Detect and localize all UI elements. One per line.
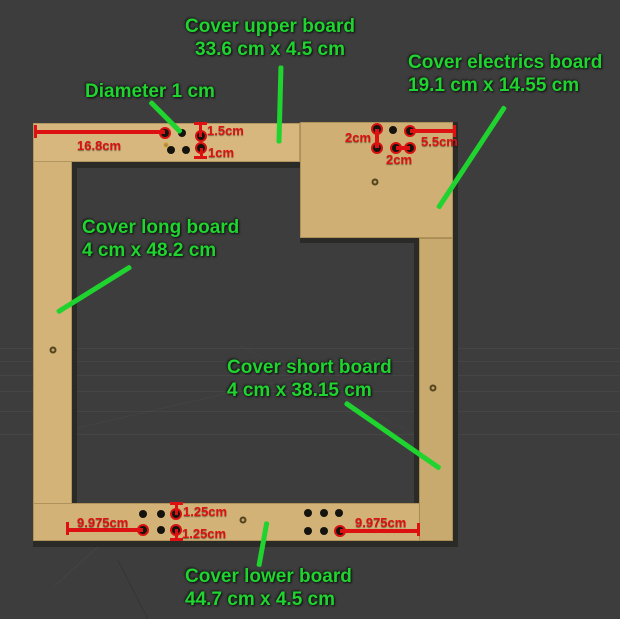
label-title: Cover upper board <box>175 15 365 38</box>
label-size: 19.1 cm x 14.55 cm <box>408 74 602 97</box>
dimension-line <box>199 123 202 137</box>
dimension-line <box>375 129 379 148</box>
label-size: 33.6 cm x 4.5 cm <box>175 38 365 61</box>
board-shadow <box>414 238 419 503</box>
dimension-label: 9.975cm <box>355 516 406 529</box>
label-title: Cover electrics board <box>408 51 602 74</box>
dimension-line <box>35 130 165 134</box>
label-cover-upper-board: Cover upper board 33.6 cm x 4.5 cm <box>175 15 365 61</box>
drill-hole <box>304 509 312 517</box>
label-title: Diameter 1 cm <box>85 80 215 103</box>
pilot-hole <box>372 179 379 186</box>
dimension-endbar <box>194 156 207 159</box>
drill-hole <box>335 509 343 517</box>
dimension-label: 1.5cm <box>207 124 244 137</box>
drill-hole <box>157 510 165 518</box>
drill-hole <box>182 146 190 154</box>
dimension-line <box>396 146 410 150</box>
label-cover-electrics-board: Cover electrics board 19.1 cm x 14.55 cm <box>408 51 602 97</box>
pilot-hole <box>430 385 437 392</box>
drill-hole <box>320 527 328 535</box>
label-diameter: Diameter 1 cm <box>85 80 215 103</box>
label-cover-long-board: Cover long board 4 cm x 48.2 cm <box>82 216 239 262</box>
board-shadow <box>72 162 77 503</box>
dimension-line <box>410 129 455 133</box>
dimension-label: 16.8cm <box>77 139 121 152</box>
label-title: Cover long board <box>82 216 239 239</box>
label-cover-short-board: Cover short board 4 cm x 38.15 cm <box>227 356 392 402</box>
pilot-hole <box>164 143 169 148</box>
dimension-line <box>175 503 178 515</box>
drill-hole <box>139 510 147 518</box>
grid-line <box>118 560 155 619</box>
assembly-diagram: 16.8cm 1.5cm 1cm 2cm 5.5cm 2cm 9.975cm 1… <box>0 0 620 619</box>
grid-line <box>0 348 620 349</box>
dimension-endbar <box>417 523 420 536</box>
dimension-label: 2cm <box>345 131 371 144</box>
drill-hole <box>157 526 165 534</box>
dimension-label: 9.975cm <box>77 516 128 529</box>
dimension-label: 1.25cm <box>183 505 227 518</box>
drill-hole <box>389 126 397 134</box>
board-shadow <box>33 541 458 547</box>
pilot-hole <box>240 517 247 524</box>
dimension-label: 1cm <box>208 146 234 159</box>
pilot-hole <box>50 347 57 354</box>
label-size: 4 cm x 48.2 cm <box>82 239 239 262</box>
label-title: Cover lower board <box>185 565 352 588</box>
cover-long-board <box>33 123 72 541</box>
dimension-label: 1.25cm <box>182 527 226 540</box>
drill-hole <box>304 527 312 535</box>
drill-hole <box>167 146 175 154</box>
dimension-label: 2cm <box>386 153 412 166</box>
label-cover-lower-board: Cover lower board 44.7 cm x 4.5 cm <box>185 565 352 611</box>
board-shadow <box>72 162 300 168</box>
dimension-label: 5.5cm <box>421 135 458 148</box>
label-size: 4 cm x 38.15 cm <box>227 379 392 402</box>
label-size: 44.7 cm x 4.5 cm <box>185 588 352 611</box>
drill-hole <box>320 509 328 517</box>
grid-line <box>0 434 620 435</box>
label-title: Cover short board <box>227 356 392 379</box>
board-shadow <box>300 238 414 243</box>
grid-line <box>0 411 620 412</box>
